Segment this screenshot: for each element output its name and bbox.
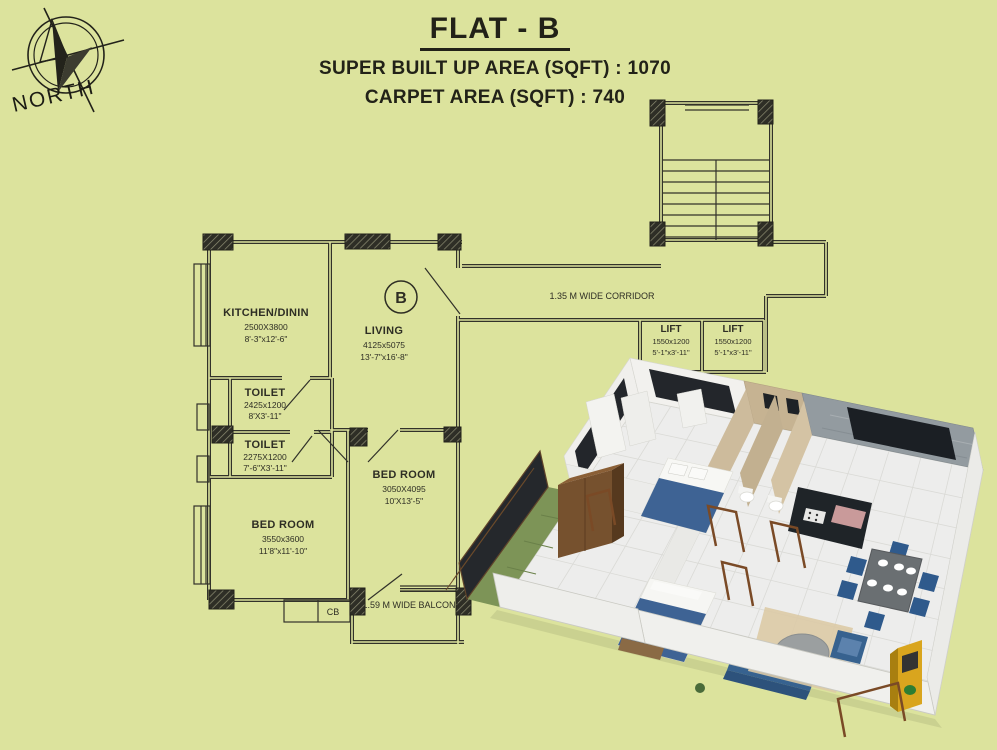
render-3d xyxy=(446,358,983,737)
svg-text:TOILET: TOILET xyxy=(245,439,286,451)
svg-text:1550x1200: 1550x1200 xyxy=(714,337,751,346)
door-swings xyxy=(284,268,460,600)
svg-text:8'-3"x12'-6": 8'-3"x12'-6" xyxy=(245,334,288,344)
svg-text:5'-1"x3'-11": 5'-1"x3'-11" xyxy=(714,348,752,357)
svg-text:2425x1200: 2425x1200 xyxy=(244,400,286,410)
svg-text:7'-6"X3'-11": 7'-6"X3'-11" xyxy=(243,463,287,473)
svg-text:BED ROOM: BED ROOM xyxy=(252,519,315,531)
corridor-label: 1.35 M WIDE CORRIDOR xyxy=(549,291,655,301)
svg-text:KITCHEN/DININ: KITCHEN/DININ xyxy=(223,307,309,319)
svg-text:LIVING: LIVING xyxy=(365,325,403,337)
unit-circle-b: B xyxy=(385,281,417,313)
room-label-living: LIVING 4125x5075 13'-7"x16'-8" xyxy=(360,325,408,362)
compass-label: NORTH xyxy=(10,76,97,117)
svg-text:TOILET: TOILET xyxy=(245,387,286,399)
svg-text:3050X4095: 3050X4095 xyxy=(382,484,426,494)
svg-text:3550x3600: 3550x3600 xyxy=(262,534,304,544)
render-plant xyxy=(695,683,705,693)
svg-text:BED ROOM: BED ROOM xyxy=(373,469,436,481)
svg-text:LIFT: LIFT xyxy=(660,324,681,335)
svg-text:10'X13'-5": 10'X13'-5" xyxy=(385,496,423,506)
svg-text:1550x1200: 1550x1200 xyxy=(652,337,689,346)
room-label-bedroom-left: BED ROOM 3550x3600 11'8"x11'-10" xyxy=(252,519,315,556)
render-yellow-cabinet xyxy=(890,640,922,712)
balcony-label: 1.59 M WIDE BALCONY xyxy=(362,600,461,610)
svg-text:8'X3'-11": 8'X3'-11" xyxy=(248,411,281,421)
svg-text:LIFT: LIFT xyxy=(722,324,743,335)
cupboard-box xyxy=(284,600,350,622)
svg-text:4125x5075: 4125x5075 xyxy=(363,340,405,350)
room-label-toilet2: TOILET 2275X1200 7'-6"X3'-11" xyxy=(243,439,287,473)
lift-1-label: LIFT 1550x1200 5'-1"x3'-11" xyxy=(652,324,690,357)
svg-text:11'8"x11'-10": 11'8"x11'-10" xyxy=(259,546,307,556)
room-label-kitchen: KITCHEN/DININ 2500X3800 8'-3"x12'-6" xyxy=(223,307,309,344)
north-compass-icon: NORTH xyxy=(10,8,124,117)
room-label-bedroom-right: BED ROOM 3050X4095 10'X13'-5" xyxy=(373,469,436,506)
cupboard-label: CB xyxy=(327,607,340,617)
room-label-toilet1: TOILET 2425x1200 8'X3'-11" xyxy=(244,387,286,421)
floor-plan-canvas: NORTH xyxy=(0,0,997,750)
stair-treads xyxy=(663,105,769,240)
svg-text:2275X1200: 2275X1200 xyxy=(243,452,287,462)
unit-label: B xyxy=(395,290,407,307)
lift-2-label: LIFT 1550x1200 5'-1"x3'-11" xyxy=(714,324,752,357)
svg-text:2500X3800: 2500X3800 xyxy=(244,322,288,332)
svg-text:5'-1"x3'-11": 5'-1"x3'-11" xyxy=(652,348,690,357)
window-toilet2 xyxy=(786,398,800,415)
svg-text:13'-7"x16'-8": 13'-7"x16'-8" xyxy=(360,352,408,362)
floor-plan-page: { "header": { "title": "FLAT - B", "supe… xyxy=(0,0,997,750)
